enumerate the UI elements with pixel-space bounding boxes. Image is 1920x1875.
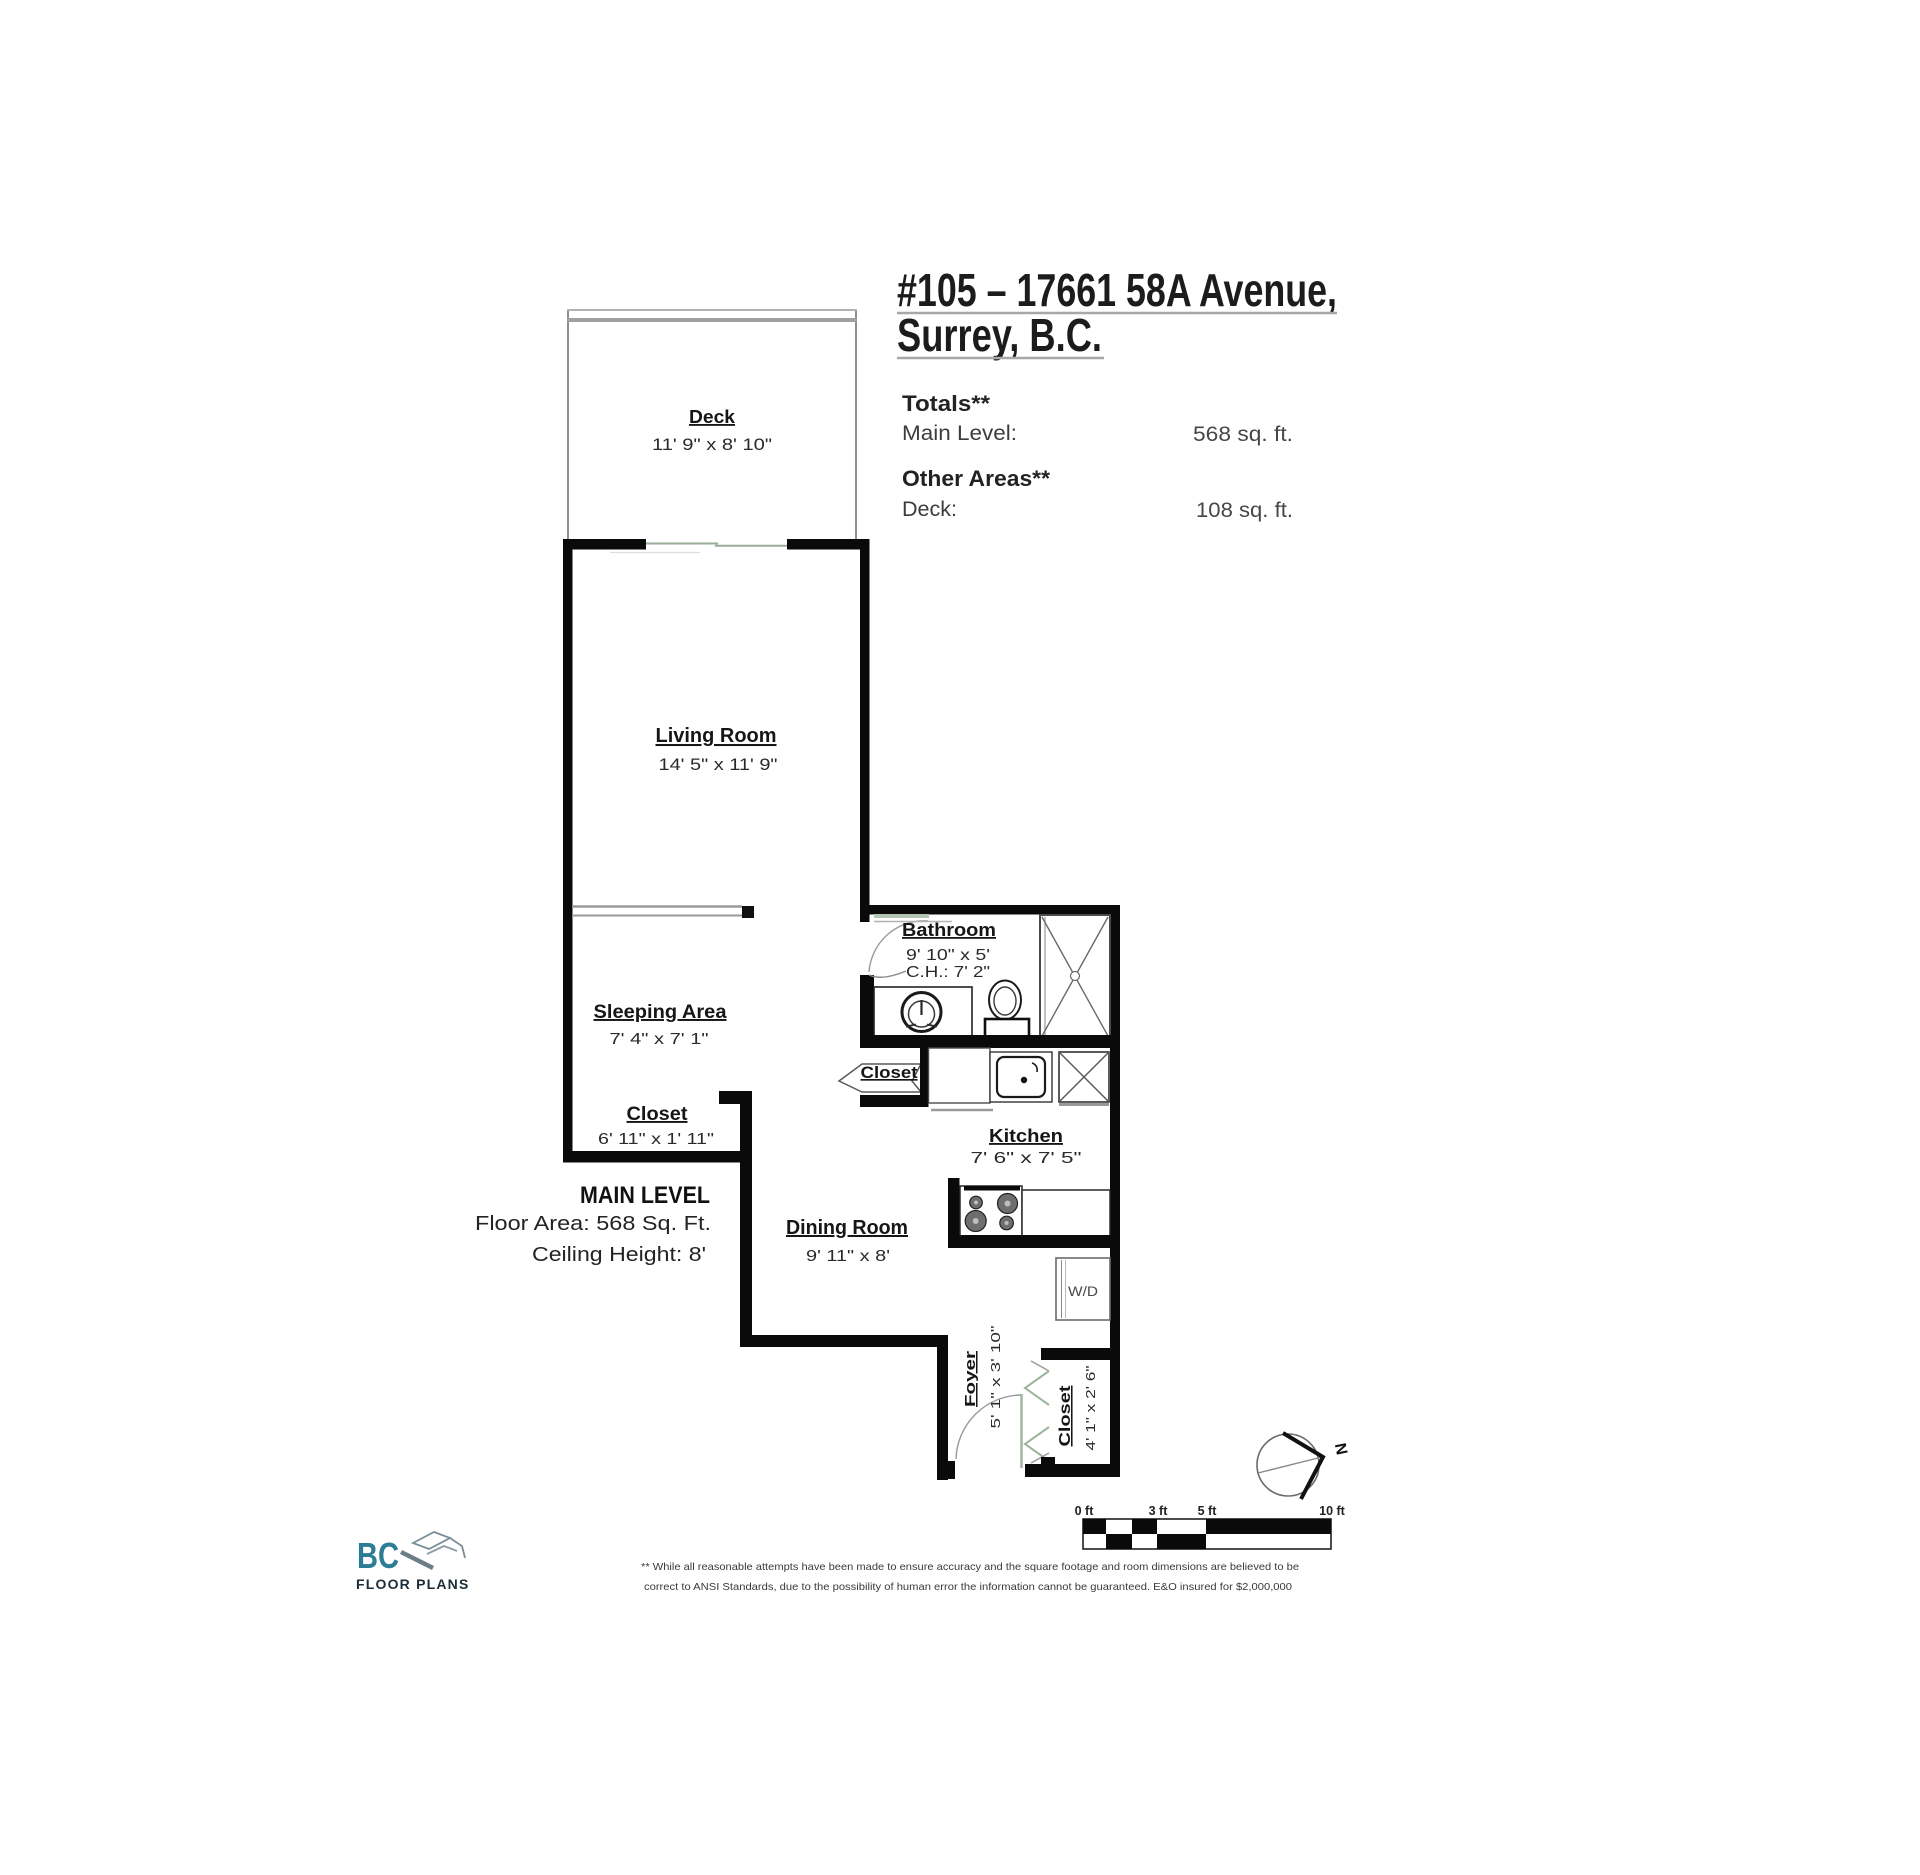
- svg-text:W/D: W/D: [1068, 1283, 1098, 1299]
- svg-text:5' 1" x 3' 10": 5' 1" x 3' 10": [988, 1325, 1003, 1429]
- svg-text:Bathroom: Bathroom: [902, 920, 996, 940]
- svg-text:BC: BC: [357, 1535, 399, 1576]
- svg-text:C.H.: 7' 2": C.H.: 7' 2": [906, 964, 990, 981]
- svg-text:FLOOR PLANS: FLOOR PLANS: [356, 1576, 470, 1592]
- svg-text:10 ft: 10 ft: [1319, 1504, 1346, 1518]
- svg-text:Deck:: Deck:: [902, 498, 957, 521]
- svg-text:9' 10" x 5': 9' 10" x 5': [906, 947, 990, 964]
- svg-text:Closet: Closet: [1057, 1386, 1074, 1447]
- svg-text:5 ft: 5 ft: [1198, 1504, 1218, 1518]
- svg-text:Ceiling Height: 8': Ceiling Height: 8': [532, 1244, 706, 1266]
- svg-text:correct to ANSI Standards, due: correct to ANSI Standards, due to the po…: [644, 1581, 1292, 1593]
- svg-text:Deck: Deck: [689, 406, 736, 427]
- svg-text:Foyer: Foyer: [962, 1351, 979, 1407]
- svg-text:14' 5" x 11' 9": 14' 5" x 11' 9": [659, 756, 778, 774]
- svg-text:0 ft: 0 ft: [1075, 1504, 1095, 1518]
- svg-text:7' 4" x 7' 1": 7' 4" x 7' 1": [610, 1031, 709, 1048]
- svg-text:Surrey, B.C.: Surrey, B.C.: [897, 309, 1102, 361]
- svg-text:4' 1" x 2' 6": 4' 1" x 2' 6": [1083, 1365, 1098, 1451]
- svg-text:6' 11" x 1' 11": 6' 11" x 1' 11": [598, 1131, 714, 1148]
- svg-text:108 sq. ft.: 108 sq. ft.: [1196, 499, 1293, 522]
- svg-text:11' 9" x 8' 10": 11' 9" x 8' 10": [652, 436, 772, 454]
- svg-text:7' 6" x 7' 5": 7' 6" x 7' 5": [971, 1150, 1082, 1167]
- svg-text:568 sq. ft.: 568 sq. ft.: [1193, 423, 1293, 446]
- svg-text:Other Areas**: Other Areas**: [902, 466, 1050, 491]
- svg-text:MAIN LEVEL: MAIN LEVEL: [580, 1182, 710, 1209]
- svg-text:Sleeping Area: Sleeping Area: [594, 1001, 727, 1023]
- svg-text:** While all reasonable attemp: ** While all reasonable attempts have be…: [641, 1561, 1299, 1573]
- svg-text:Floor Area: 568 Sq. Ft.: Floor Area: 568 Sq. Ft.: [475, 1213, 711, 1235]
- svg-text:Living Room: Living Room: [656, 724, 777, 747]
- svg-text:Totals**: Totals**: [902, 391, 990, 416]
- svg-text:Closet: Closet: [861, 1064, 919, 1082]
- svg-text:9' 11" x 8': 9' 11" x 8': [806, 1248, 890, 1265]
- svg-text:N: N: [1331, 1442, 1350, 1457]
- svg-text:Main Level:: Main Level:: [902, 422, 1017, 445]
- svg-text:Kitchen: Kitchen: [989, 1125, 1063, 1146]
- svg-text:Dining Room: Dining Room: [786, 1217, 908, 1239]
- svg-text:Closet: Closet: [627, 1104, 689, 1125]
- svg-text:3 ft: 3 ft: [1149, 1504, 1169, 1518]
